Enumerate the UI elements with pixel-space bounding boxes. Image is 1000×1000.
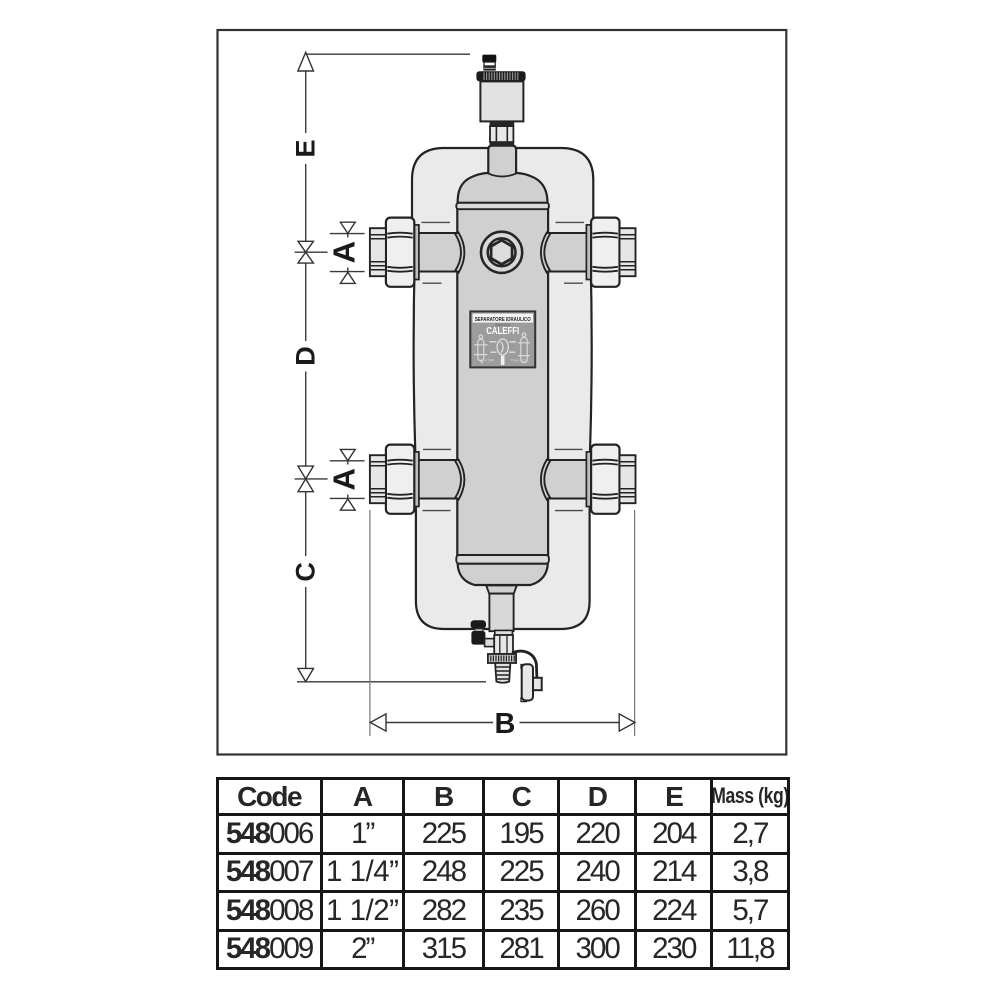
svg-text:SEPARATORE IDRAULICO: SEPARATORE IDRAULICO [475,317,531,323]
svg-text:E: E [291,139,321,157]
svg-text:CALEFFI: CALEFFI [486,326,519,337]
svg-text:C: C [291,562,321,582]
svg-text:A: A [327,468,362,490]
svg-text:cod. 548: cod. 548 [481,358,494,362]
svg-text:B: B [495,708,516,740]
svg-text:Tmax 110: Tmax 110 [511,358,526,362]
svg-text:D: D [291,346,321,366]
svg-text:A: A [327,241,362,263]
